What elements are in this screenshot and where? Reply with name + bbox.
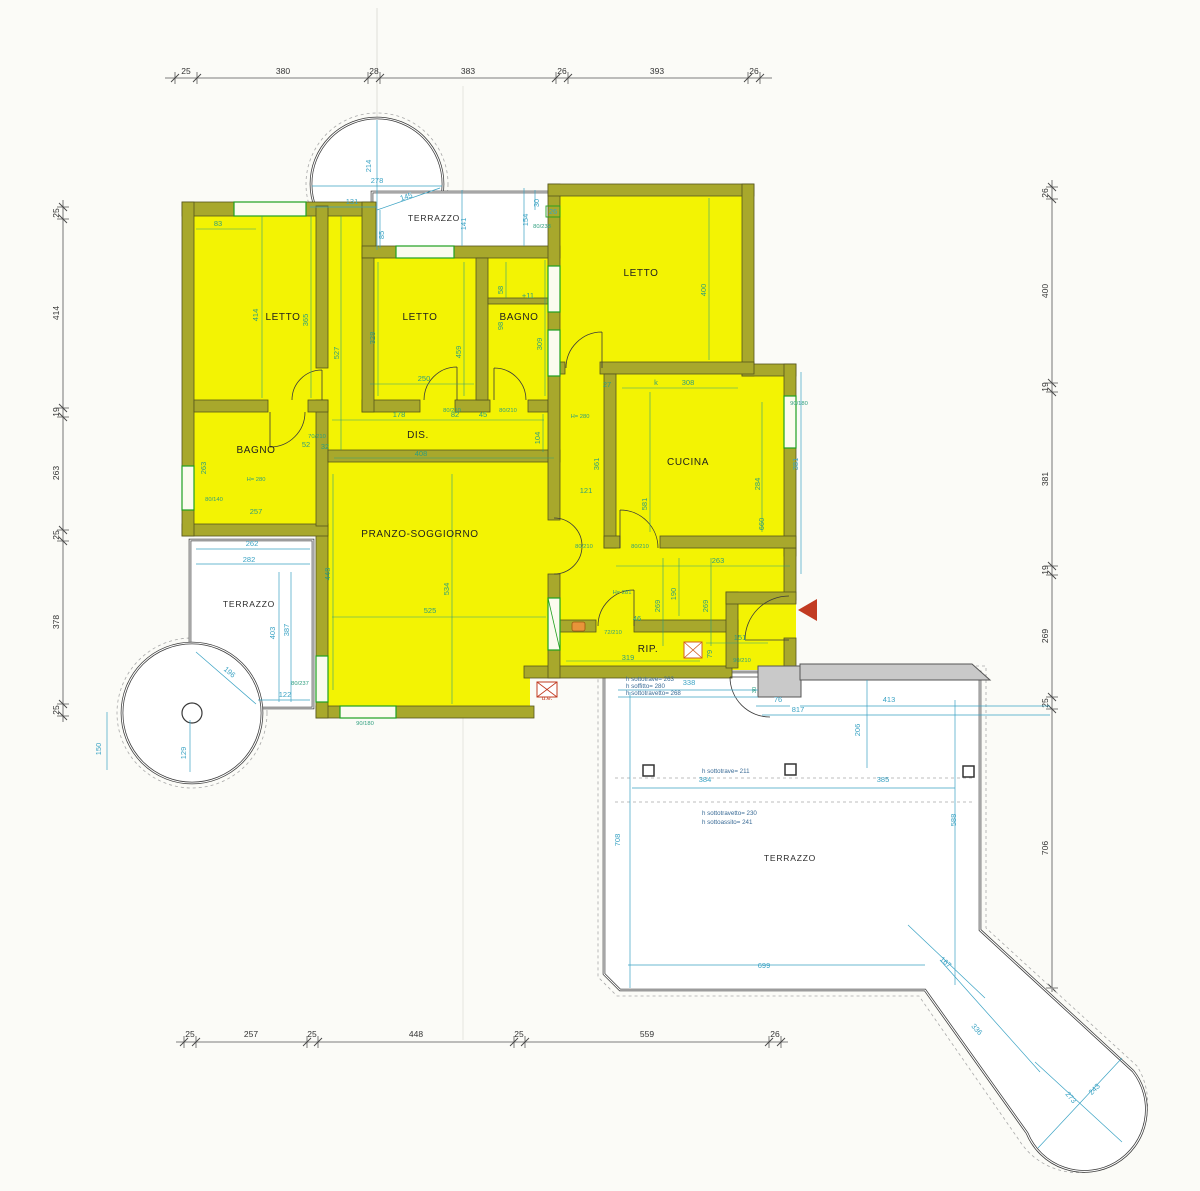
height-label-hall: H= 281 (613, 590, 632, 596)
window-size-80-238: 80/238 (533, 224, 551, 230)
floor-plan-page: 25 380 28 383 26 393 26 25 414 19 263 25… (0, 0, 1200, 1191)
dim-label-269b: 269 (701, 600, 710, 613)
dim-label-413: 413 (883, 695, 896, 704)
dim-label-308: 308 (682, 378, 695, 387)
door-size-72-210: 72/210 (604, 630, 622, 636)
dim-label-214: 214 (364, 160, 373, 173)
window-size-90-180-b: 90/180 (356, 721, 374, 727)
room-label-cucina: CUCINA (667, 457, 709, 468)
room-label-bagno-w: BAGNO (236, 445, 275, 456)
dim-bottom-1: 257 (244, 1029, 258, 1039)
window-letto-nw (234, 202, 306, 216)
dim-label-104: 104 (533, 432, 542, 445)
dim-bottom-6: 26 (770, 1029, 780, 1039)
dim-label-534: 534 (442, 583, 451, 596)
room-label-rip: RIP. (638, 644, 659, 655)
door-size-80-210-b: 80/210 (499, 408, 517, 414)
room-label-dis: DIS. (407, 430, 429, 441)
dim-label-328: 328 (368, 332, 377, 345)
window-pranzo-left (316, 656, 328, 702)
dim-label-699: 699 (758, 961, 771, 970)
dim-label-257: 257 (250, 507, 263, 516)
entrance-arrow-icon (798, 599, 817, 621)
dim-label-381-blue: 381 (791, 458, 800, 471)
window-bagno-w (182, 466, 194, 510)
height-label-bagno: H= 280 (247, 477, 266, 483)
dim-label-plus11: +11 (522, 291, 534, 300)
door-size-80-210-c: 80/210 (575, 544, 593, 550)
dim-right-5: 269 (1040, 629, 1050, 643)
dim-label-121: 121 (580, 486, 593, 495)
dim-label-414: 414 (251, 309, 260, 322)
dim-label-581: 581 (640, 498, 649, 511)
dim-label-338: 338 (683, 678, 696, 687)
dim-bottom-2: 25 (307, 1029, 317, 1039)
dim-left-4: 25 (51, 530, 61, 540)
terrace-left (117, 540, 313, 788)
dim-label-k: k (654, 378, 658, 387)
dim-label-284: 284 (753, 478, 762, 491)
dim-label-190: 190 (669, 588, 678, 601)
dim-label-282: 282 (243, 555, 256, 564)
room-label-terrazzo-left: TERRAZZO (223, 599, 275, 609)
dim-label-129: 129 (179, 747, 188, 760)
note-sottotrave-263: h sottotrave= 263 (626, 676, 675, 683)
fixture-orange (572, 622, 585, 631)
dim-label-131: 131 (346, 197, 359, 206)
room-label-letto-n: LETTO (402, 312, 437, 323)
dim-label-122: 122 (279, 690, 292, 699)
note-sottotrave-211: h sottotrave= 211 (702, 768, 750, 775)
dim-top-4: 26 (557, 66, 567, 76)
dim-top-6: 26 (749, 66, 759, 76)
dim-label-141: 141 (459, 218, 468, 231)
note-sottoassito-241: h sottoassito= 241 (702, 819, 753, 826)
dim-label-45: 45 (479, 410, 487, 419)
dim-left-6: 25 (51, 705, 61, 715)
dim-label-154: 154 (521, 214, 530, 227)
door-size-70-210: 70/210 (308, 434, 326, 440)
dim-label-309: 309 (535, 338, 544, 351)
red-cross-box-2 (684, 642, 702, 658)
terrace-column-circle (182, 703, 202, 723)
dim-label-385: 385 (877, 775, 890, 784)
dim-label-98: 98 (496, 322, 505, 330)
dim-label-79: 79 (705, 650, 714, 658)
note-sottotravetto-268: h sottotravetto= 268 (626, 690, 681, 697)
dim-label-817: 817 (792, 705, 805, 714)
dim-label-250: 250 (418, 374, 431, 383)
dimension-chain-top: 25 380 28 383 26 393 26 (165, 66, 772, 84)
terrace-column (643, 765, 654, 776)
window-size-80-140: 80/140 (205, 497, 223, 503)
dim-label-387: 387 (282, 624, 291, 637)
room-label-letto-ne: LETTO (623, 268, 658, 279)
dim-left-2: 19 (51, 407, 61, 417)
dim-label-85: 85 (377, 231, 386, 239)
dim-label-269a: 269 (653, 600, 662, 613)
dimension-chain-left: 25 414 19 263 25 378 25 (51, 200, 69, 722)
room-label-bagno-n: BAGNO (499, 312, 538, 323)
dim-right-4: 19 (1040, 565, 1050, 575)
window-size-90-180: 90/180 (790, 401, 808, 407)
dim-label-27: 27 (603, 380, 611, 389)
dimension-chain-right: 26 400 19 381 19 269 25 706 (1040, 180, 1058, 992)
dim-top-0: 25 (181, 66, 191, 76)
dim-top-3: 383 (461, 66, 475, 76)
dim-label-708: 708 (613, 834, 622, 847)
dimension-chain-bottom: 25 257 25 448 25 559 26 (176, 1029, 788, 1048)
room-label-pranzo: PRANZO-SOGGIORNO (361, 529, 478, 540)
dim-label-278: 278 (371, 176, 384, 185)
dim-left-5: 378 (51, 615, 61, 629)
dim-right-1: 400 (1040, 284, 1050, 298)
dim-label-400: 400 (699, 284, 708, 297)
terrace-column (963, 766, 974, 777)
dim-label-178: 178 (393, 410, 406, 419)
dim-label-319: 319 (622, 653, 635, 662)
dim-label-32: 32 (321, 442, 329, 451)
dim-label-403: 403 (268, 627, 277, 640)
dim-label-263-bagno: 263 (199, 462, 208, 475)
dim-label-52: 52 (302, 440, 310, 449)
window-letto-ne-2 (548, 330, 560, 376)
height-label-corridor: H= 280 (571, 414, 590, 420)
dim-top-2: 28 (369, 66, 379, 76)
dim-left-3: 263 (51, 466, 61, 480)
dim-left-1: 414 (51, 306, 61, 320)
dim-label-58: 58 (496, 286, 505, 294)
dim-right-7: 706 (1040, 841, 1050, 855)
dim-label-83: 83 (214, 219, 222, 228)
dim-label-30-b: 30 (752, 687, 758, 693)
dim-label-365: 365 (301, 314, 310, 327)
dim-label-361: 361 (592, 458, 601, 471)
dim-label-459: 459 (454, 346, 463, 359)
dim-label-408: 408 (415, 449, 428, 458)
window-size-80-237: 80/237 (291, 681, 309, 687)
room-label-terrazzo-big: TERRAZZO (764, 853, 816, 863)
room-label-terrazzo-top: TERRAZZO (408, 213, 460, 223)
dim-top-5: 393 (650, 66, 664, 76)
dim-bottom-4: 25 (514, 1029, 524, 1039)
dim-label-26-box: 26 (549, 207, 557, 216)
dim-label-263-cucina: 263 (712, 556, 725, 565)
door-size-80-210-a: 80/210 (443, 408, 461, 414)
dim-right-3: 381 (1040, 472, 1050, 486)
window-letto-ne-1 (548, 266, 560, 312)
dim-label-448: 448 (323, 568, 332, 581)
door-size-80-210-d: 80/210 (631, 544, 649, 550)
dim-label-46: 46 (633, 614, 641, 623)
dim-label-527: 527 (332, 347, 341, 360)
dim-label-150: 150 (94, 743, 103, 756)
room-label-letto-nw: LETTO (265, 312, 300, 323)
dim-bottom-5: 559 (640, 1029, 654, 1039)
dim-label-76: 76 (774, 695, 782, 704)
dim-left-0: 25 (51, 208, 61, 218)
dim-right-0: 26 (1040, 188, 1050, 198)
window-pranzo (340, 706, 396, 718)
marker-ue: u.e. (542, 695, 553, 702)
dim-label-151: 151 (734, 633, 747, 642)
dim-label-30: 30 (532, 199, 541, 207)
window-letto-n (396, 246, 454, 258)
dim-right-2: 19 (1040, 382, 1050, 392)
dim-label-262: 262 (246, 539, 259, 548)
door-size-90-210: 90/210 (733, 658, 751, 664)
floor-plan-svg: 25 380 28 383 26 393 26 25 414 19 263 25… (0, 0, 1200, 1191)
dim-label-525: 525 (424, 606, 437, 615)
dim-bottom-0: 25 (185, 1029, 195, 1039)
dim-top-1: 380 (276, 66, 290, 76)
dim-label-660: 660 (757, 518, 766, 531)
note-soffitto-280: h soffitto= 280 (626, 683, 665, 690)
terrace-column (785, 764, 796, 775)
dim-label-384: 384 (699, 775, 712, 784)
dim-label-588: 588 (949, 814, 958, 827)
dim-bottom-3: 448 (409, 1029, 423, 1039)
note-sottotravetto-230: h sottotravetto= 230 (702, 810, 757, 817)
dim-label-206: 206 (853, 724, 862, 737)
